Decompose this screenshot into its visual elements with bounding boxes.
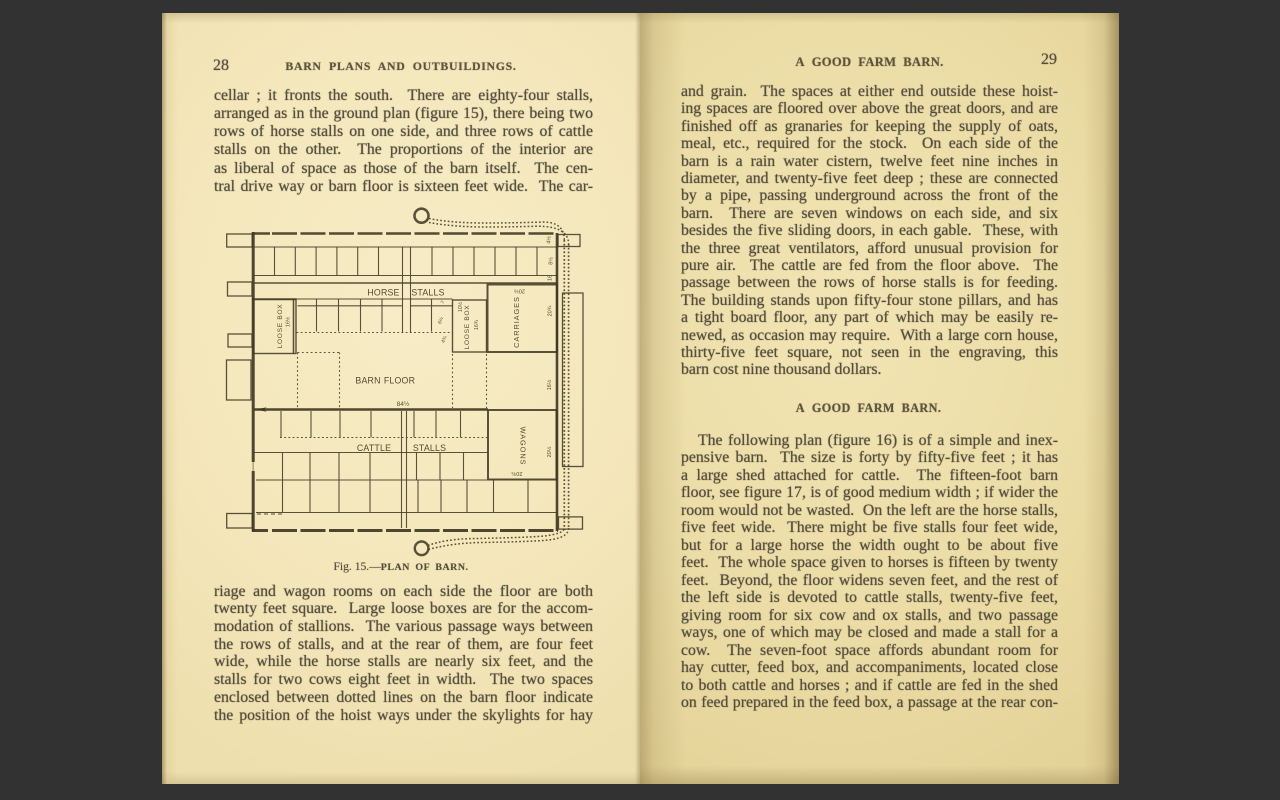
svg-text:4½: 4½: [546, 236, 553, 244]
svg-text:84½: 84½: [397, 400, 410, 408]
svg-text:20½: 20½: [546, 446, 553, 457]
svg-text:FLOOR: FLOOR: [384, 376, 415, 386]
svg-text:20¾: 20¾: [511, 470, 522, 476]
svg-text:LOOSE BOX: LOOSE BOX: [277, 304, 284, 349]
svg-text:10½: 10½: [457, 301, 464, 312]
svg-text:20¾: 20¾: [548, 305, 554, 316]
svg-text:16¾: 16¾: [474, 319, 480, 330]
svg-text:20½: 20½: [514, 288, 525, 295]
svg-text:STALLS: STALLS: [411, 288, 444, 298]
svg-text:8½: 8½: [548, 257, 555, 265]
svg-text:CARRIAGES: CARRIAGES: [512, 296, 521, 348]
svg-text:4¾: 4¾: [441, 335, 449, 344]
svg-text:WAGONS: WAGONS: [519, 427, 528, 466]
svg-text:BARN: BARN: [355, 376, 380, 386]
svg-text:STALLS: STALLS: [413, 443, 446, 453]
svg-text:16½: 16½: [546, 379, 553, 390]
svg-text:16½: 16½: [285, 316, 292, 327]
svg-text:HORSE: HORSE: [367, 288, 399, 298]
svg-text:6½: 6½: [436, 315, 445, 325]
svg-text:16: 16: [548, 275, 554, 281]
svg-text:LOOSE BOX: LOOSE BOX: [464, 305, 471, 350]
svg-text:7: 7: [440, 300, 447, 306]
svg-text:CATTLE: CATTLE: [357, 443, 391, 453]
